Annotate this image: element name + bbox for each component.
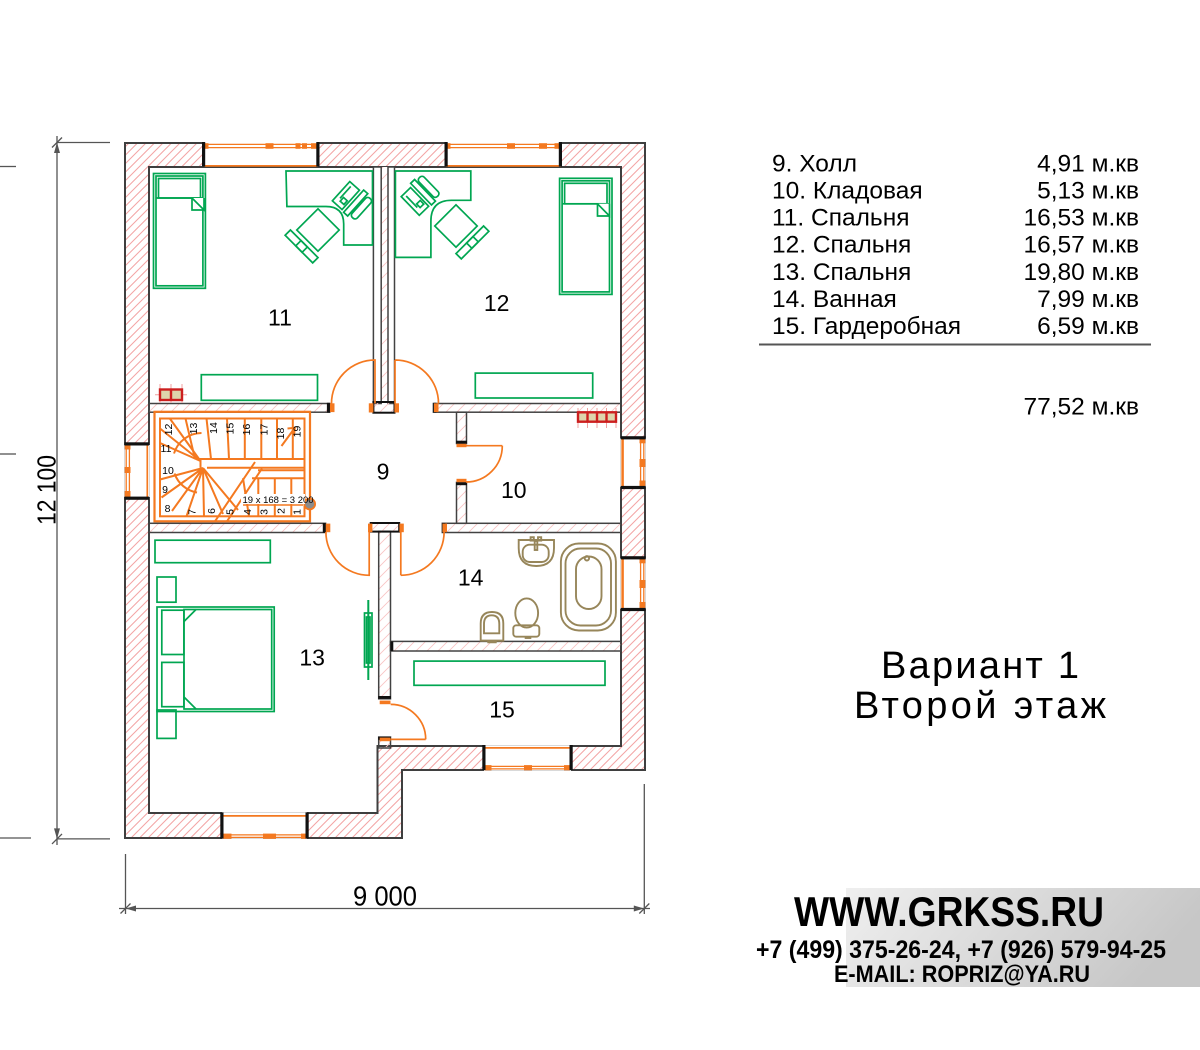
svg-text:18: 18 [275,428,287,440]
svg-text:7: 7 [186,509,198,515]
svg-text:10: 10 [162,465,174,477]
svg-text:19,80 м.кв: 19,80 м.кв [1023,259,1139,286]
svg-text:11: 11 [268,305,292,331]
svg-text:12 100: 12 100 [32,455,62,525]
svg-text:8: 8 [165,503,171,515]
svg-text:16,53 м.кв: 16,53 м.кв [1023,205,1139,232]
svg-text:5: 5 [225,509,237,515]
svg-text:3: 3 [258,509,270,515]
svg-text:7,99 м.кв: 7,99 м.кв [1037,286,1139,313]
svg-text:Вариант 1: Вариант 1 [881,645,1079,687]
svg-text:2: 2 [276,508,288,514]
svg-text:12: 12 [163,424,175,436]
svg-text:1: 1 [291,509,303,515]
svg-text:4: 4 [242,509,254,515]
svg-text:E-MAIL: ROPRIZ@YA.RU: E-MAIL: ROPRIZ@YA.RU [834,961,1090,988]
svg-text:16: 16 [241,424,253,436]
svg-text:WWW.GRKSS.RU: WWW.GRKSS.RU [794,888,1104,935]
svg-text:16,57 м.кв: 16,57 м.кв [1023,232,1139,259]
svg-text:14. Ванная: 14. Ванная [772,286,897,313]
svg-text:13: 13 [188,423,200,435]
svg-text:Второй этаж: Второй этаж [854,685,1107,727]
svg-text:9: 9 [377,459,390,485]
svg-text:12: 12 [484,290,510,316]
svg-text:15: 15 [225,423,237,435]
svg-text:6: 6 [206,508,218,514]
svg-text:13. Спальня: 13. Спальня [772,259,911,286]
svg-text:14: 14 [208,422,220,434]
svg-text:9: 9 [162,484,168,496]
svg-text:19: 19 [291,426,303,438]
svg-text:19 x 168 = 3 200: 19 x 168 = 3 200 [243,495,314,506]
svg-text:9. Холл: 9. Холл [772,151,857,178]
svg-text:13: 13 [299,645,325,671]
svg-text:14: 14 [458,565,484,591]
svg-text:12. Спальня: 12. Спальня [772,232,911,259]
svg-text:15. Гардеробная: 15. Гардеробная [772,313,961,340]
svg-text:10: 10 [501,477,527,503]
svg-text:17: 17 [258,424,270,436]
svg-text:6,59 м.кв: 6,59 м.кв [1037,313,1139,340]
svg-text:5,13 м.кв: 5,13 м.кв [1037,178,1139,205]
svg-text:11. Спальня: 11. Спальня [772,205,910,232]
svg-text:10. Кладовая: 10. Кладовая [772,178,923,205]
svg-text:77,52 м.кв: 77,52 м.кв [1023,394,1139,421]
svg-text:+7 (499) 375-26-24, +7 (926) 5: +7 (499) 375-26-24, +7 (926) 579-94-25 [756,936,1166,964]
svg-text:9 000: 9 000 [353,881,417,912]
svg-text:15: 15 [489,697,515,723]
svg-text:4,91 м.кв: 4,91 м.кв [1037,151,1139,178]
svg-text:11: 11 [161,443,172,455]
